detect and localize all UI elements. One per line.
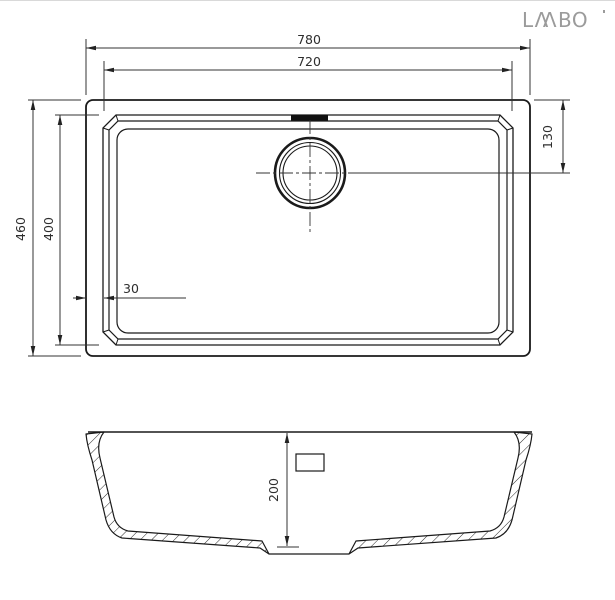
bowl-floor-edge	[117, 129, 499, 333]
drawing-page: LΛΛBO	[0, 0, 615, 600]
logo-trademark-tick	[603, 10, 605, 13]
logo-letter: BO	[558, 8, 588, 32]
top-view	[86, 100, 530, 356]
dim-outer-depth: 460	[13, 217, 28, 241]
dim-drain-offset: 130	[540, 125, 555, 149]
bowl-rim-outer	[103, 115, 513, 345]
section-left-wall	[86, 432, 269, 554]
dim-outer-width: 780	[297, 32, 321, 47]
brand-logo: LΛΛBO	[522, 8, 605, 32]
section-dimensions: 200	[266, 433, 289, 546]
logo-letter: L	[522, 8, 534, 32]
section-view	[86, 432, 532, 554]
dim-bowl-depth: 200	[266, 478, 281, 502]
logo-letter: Λ	[543, 8, 557, 32]
dim-inner-depth: 400	[41, 217, 56, 241]
dim-inner-width: 720	[297, 54, 321, 69]
bowl-rim-inner	[109, 121, 507, 339]
sink-technical-drawing: LΛΛBO	[0, 1, 615, 600]
dimension-lines	[33, 48, 563, 356]
section-right-wall	[349, 432, 532, 554]
dim-rim-width: 30	[123, 281, 139, 296]
section-overflow-box	[296, 454, 324, 471]
overflow-slot	[291, 115, 328, 121]
brand-logo-text: LΛΛBO	[522, 8, 588, 32]
corner-bevels	[103, 115, 513, 345]
drain	[256, 120, 352, 235]
